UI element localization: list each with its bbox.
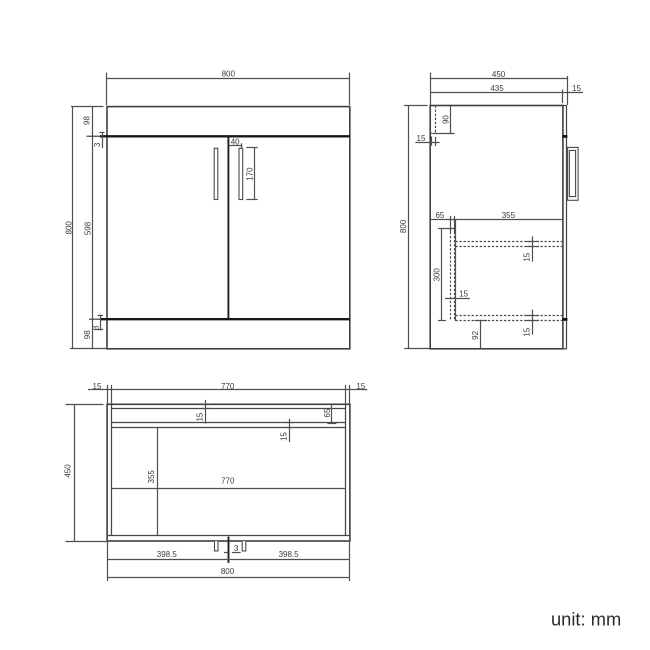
svg-text:15: 15	[523, 252, 532, 261]
svg-text:800: 800	[222, 70, 236, 79]
svg-text:15: 15	[93, 382, 102, 391]
svg-text:170: 170	[245, 167, 254, 181]
svg-text:355: 355	[147, 470, 156, 484]
svg-text:65: 65	[435, 211, 444, 220]
svg-text:598: 598	[83, 221, 92, 235]
svg-text:450: 450	[492, 70, 506, 79]
svg-text:98: 98	[83, 116, 92, 125]
svg-text:398.5: 398.5	[279, 550, 300, 559]
svg-text:15: 15	[196, 412, 205, 421]
svg-text:15: 15	[356, 382, 365, 391]
svg-text:3: 3	[93, 142, 102, 147]
svg-text:40: 40	[231, 138, 240, 147]
svg-text:90: 90	[442, 115, 451, 124]
svg-text:3: 3	[234, 544, 239, 553]
svg-text:800: 800	[221, 567, 235, 576]
svg-text:15: 15	[523, 327, 532, 336]
svg-text:300: 300	[433, 268, 442, 282]
svg-text:65: 65	[323, 408, 332, 417]
svg-text:770: 770	[221, 382, 235, 391]
svg-text:355: 355	[502, 211, 516, 220]
svg-text:unit: mm: unit: mm	[551, 609, 621, 630]
svg-text:15: 15	[459, 290, 468, 299]
svg-text:15: 15	[572, 84, 581, 93]
svg-text:15: 15	[279, 432, 288, 441]
svg-text:92: 92	[471, 330, 480, 339]
svg-text:3: 3	[92, 325, 101, 330]
svg-text:450: 450	[64, 464, 73, 478]
svg-text:98: 98	[83, 330, 92, 339]
svg-text:15: 15	[417, 134, 426, 143]
svg-text:398.5: 398.5	[157, 550, 178, 559]
svg-text:800: 800	[399, 219, 408, 233]
svg-text:800: 800	[65, 221, 74, 235]
svg-text:435: 435	[490, 84, 504, 93]
svg-text:770: 770	[221, 476, 235, 485]
